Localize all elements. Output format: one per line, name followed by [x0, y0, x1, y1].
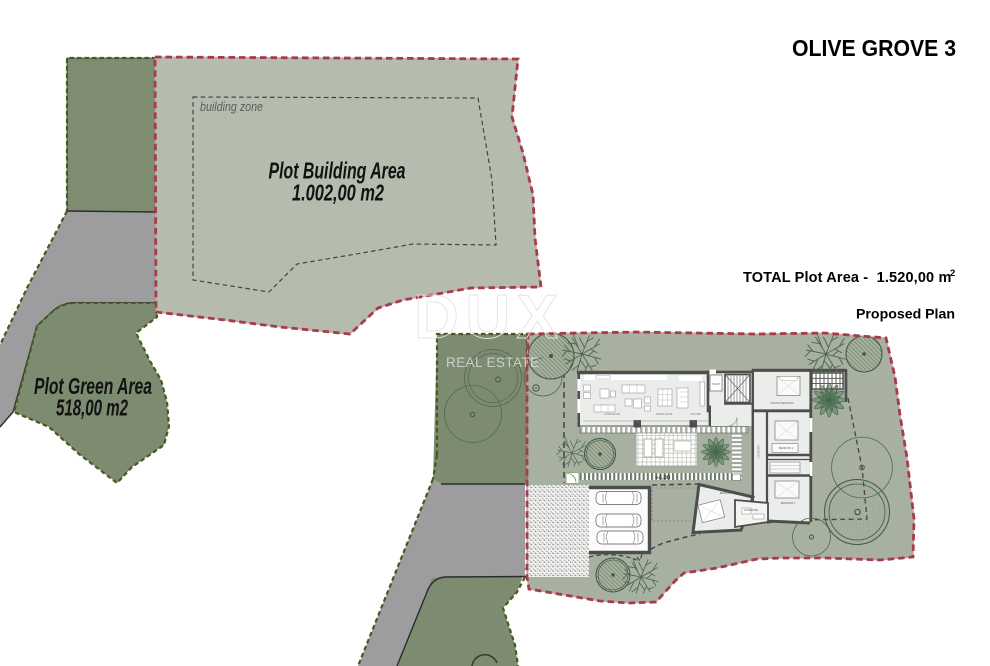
svg-text:MASTER BEDROOM: MASTER BEDROOM	[771, 402, 794, 405]
svg-text:BEDROOM 2: BEDROOM 2	[779, 447, 794, 450]
svg-text:+4.00: +4.00	[655, 476, 671, 482]
svg-text:BEDROOM 3: BEDROOM 3	[781, 502, 796, 505]
svg-text:2: 2	[950, 268, 955, 279]
svg-text:TOTAL Plot Area - 1.520,00 m: TOTAL Plot Area - 1.520,00 m	[743, 270, 952, 286]
svg-text:KITCHEN: KITCHEN	[691, 413, 702, 416]
svg-text:WARDROBE: WARDROBE	[744, 509, 758, 512]
svg-text:LIVING ROOM: LIVING ROOM	[604, 413, 620, 416]
svg-text:DUX: DUX	[414, 283, 574, 352]
svg-text:REAL ESTATE: REAL ESTATE	[446, 355, 543, 370]
svg-text:518,00 m2: 518,00 m2	[56, 395, 128, 421]
svg-text:TOILET: TOILET	[712, 383, 721, 386]
svg-text:Proposed Plan: Proposed Plan	[856, 306, 955, 322]
svg-text:CORRIDOR: CORRIDOR	[758, 445, 761, 458]
svg-text:DINING ROOM: DINING ROOM	[656, 413, 672, 416]
svg-text:BEDROOM 4: BEDROOM 4	[720, 492, 735, 495]
svg-text:building zone: building zone	[200, 100, 263, 114]
svg-text:OLIVE GROVE 3: OLIVE GROVE 3	[792, 35, 956, 61]
svg-text:1.002,00 m2: 1.002,00 m2	[292, 180, 384, 206]
